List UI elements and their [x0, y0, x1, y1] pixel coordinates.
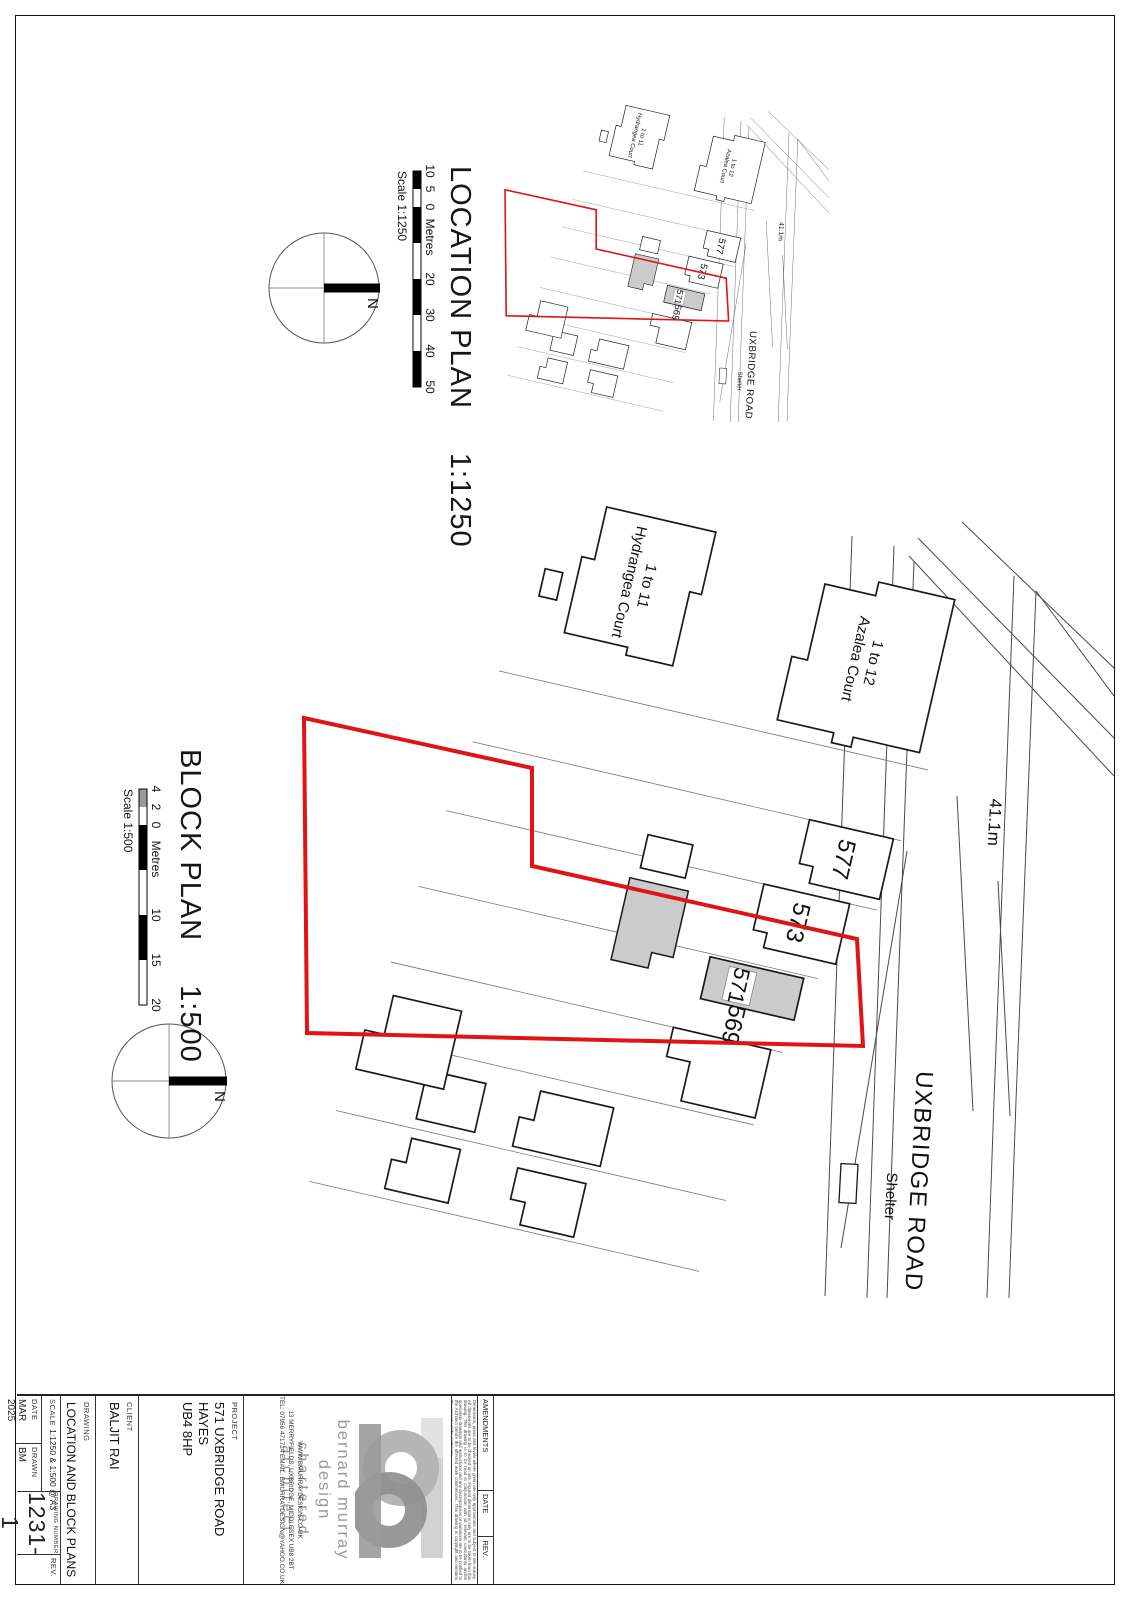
title-block: AMENDMENTS DATE REV. Dimensions, areas a…	[17, 1394, 1114, 1584]
scalebar-tick: 0	[149, 822, 163, 829]
date-label: DATE	[30, 1399, 39, 1440]
drawing-number-cell: DRAWING NUMBER 1231-1	[17, 1492, 60, 1555]
drawn-value: BM	[16, 1447, 27, 1488]
amendments-rev-header: REV.	[478, 1537, 493, 1584]
block-plan-map: 577 573 571 569 1 to 12 Azalea Court 1 t…	[304, 476, 1114, 1298]
block-plan-scale-text: 1:500	[174, 985, 206, 1063]
location-north-arrow: N	[269, 233, 381, 343]
block-north-arrow: N	[112, 1024, 228, 1138]
context-building	[356, 991, 462, 1089]
scalebar-metres: Metres	[423, 219, 437, 256]
location-plan-title-text: LOCATION PLAN	[444, 166, 476, 409]
drawing-sheet: 577 573 571 569 1 to 12 Azalea Court 1 t…	[15, 15, 1115, 1585]
scalebar-tick: 30	[423, 308, 437, 322]
drawn-label: DRAWN	[30, 1447, 39, 1488]
location-plan-scale-text: 1:1250	[444, 453, 476, 548]
block-scalebar: 4 2 0 Metres 10 15 20 Scale 1:500	[121, 786, 163, 1012]
scalebar-tick: 5	[423, 186, 437, 193]
brand-name: bernard murray design	[314, 1396, 352, 1584]
date-value: MAR 2025	[5, 1399, 27, 1440]
amendments-date-header: DATE	[478, 1491, 493, 1538]
rev-label: REV.	[49, 1558, 58, 1581]
scalebar-caption: Scale 1:1250	[395, 171, 409, 241]
disclaimer-notes: Dimensions, areas and levels where given…	[451, 1396, 477, 1584]
bus-shelter	[839, 1164, 858, 1204]
plots-group: 577 573 571 569 1 to 12 Azalea Court 1 t…	[309, 476, 969, 1296]
brand-section: bernard murray design chartered architec…	[308, 1396, 352, 1584]
drawing-number-value: 1231-1	[0, 1492, 50, 1554]
bd-logo	[356, 1410, 448, 1570]
logo-section	[352, 1396, 451, 1584]
drawing-page: 577 573 571 569 1 to 12 Azalea Court 1 t…	[0, 0, 1131, 1600]
plot-boundary-lines	[309, 655, 927, 1296]
shelter-label: Shelter	[881, 1172, 900, 1220]
road-width-label: 41.1m	[984, 798, 1005, 846]
drawing-title: LOCATION AND BLOCK PLANS	[63, 1402, 79, 1578]
contact-section: WWW.BMURRAYDESIGN.CO.UK 13 MERRYFIELDS, …	[244, 1396, 308, 1584]
client-label: CLIENT	[125, 1402, 134, 1578]
label-569: 569	[715, 1002, 750, 1047]
block-plan-title: BLOCK PLAN1:500	[173, 749, 206, 1063]
context-building	[385, 1135, 461, 1203]
scale-cell: SCALE1:1250 & 1:500 @ A3	[41, 1396, 60, 1491]
scalebar-tick: 10	[149, 908, 163, 922]
context-building	[505, 1168, 586, 1237]
scalebar-tick: 20	[149, 998, 163, 1012]
amendments-header-row: AMENDMENTS DATE REV.	[477, 1396, 494, 1584]
block-plan-title-text: BLOCK PLAN	[174, 749, 206, 941]
amendments-header: AMENDMENTS	[478, 1396, 493, 1491]
client-name: BALJIT RAI	[106, 1402, 122, 1578]
project-address-1: 571 UXBRIDGE ROAD	[211, 1402, 227, 1578]
scalebar-tick: 2	[149, 804, 163, 811]
location-plan-map	[505, 93, 829, 422]
outbuilding-small	[539, 569, 563, 600]
location-plan-title: LOCATION PLAN1:1250	[443, 166, 476, 548]
scale-label: SCALE	[48, 1399, 57, 1426]
address: 13 MERRYFIELDS, UXBRIDGE, MIDDLESEX UB8 …	[286, 1396, 295, 1584]
scalebar-tick: 40	[423, 344, 437, 358]
website: WWW.BMURRAYDESIGN.CO.UK	[295, 1396, 304, 1584]
drawing-label: DRAWING	[82, 1402, 91, 1578]
scalebar-tick: 15	[149, 953, 163, 967]
north-label: N	[364, 298, 381, 309]
scalebar-tick: 4	[149, 786, 163, 793]
scalebar-caption: Scale 1:500	[121, 789, 135, 853]
info-grid: SCALE1:1250 & 1:500 @ A3 DATE MAR 2025 D…	[17, 1396, 61, 1584]
location-scalebar: 10 5 0 Metres 20 30 40 50 Scale 1:1250	[395, 164, 437, 394]
scalebar-tick: 10	[423, 164, 437, 178]
project-section: PROJECT 571 UXBRIDGE ROAD HAYES UB4 8HP	[139, 1396, 244, 1584]
scalebar-metres: Metres	[149, 841, 163, 878]
scale-date-drawn-cells: SCALE1:1250 & 1:500 @ A3 DATE MAR 2025 D…	[17, 1396, 60, 1492]
project-address-3: UB4 8HP	[179, 1402, 195, 1578]
scalebar-tick: 0	[423, 204, 437, 211]
drawn-cell: DRAWN BM	[16, 1444, 41, 1491]
project-address-2: HAYES	[195, 1402, 211, 1578]
scalebar-tick: 50	[423, 380, 437, 394]
drawing-number-label: DRAWING NUMBER	[52, 1492, 58, 1554]
project-label: PROJECT	[230, 1402, 239, 1578]
north-label: N	[211, 1091, 228, 1102]
road-name-label: UXBRIDGE ROAD	[899, 1070, 938, 1292]
annexe-outline	[640, 835, 692, 878]
client-section: CLIENT BALJIT RAI	[96, 1396, 139, 1584]
tel-email: TEL: 07956 471714 EMAIL: BMURRAYDESIGN@Y…	[277, 1396, 286, 1584]
scalebar-tick: 20	[423, 272, 437, 286]
rev-cell: REV.	[17, 1555, 60, 1584]
drawing-section: DRAWING LOCATION AND BLOCK PLANS	[61, 1396, 96, 1584]
date-cell: DATE MAR 2025	[16, 1396, 41, 1444]
